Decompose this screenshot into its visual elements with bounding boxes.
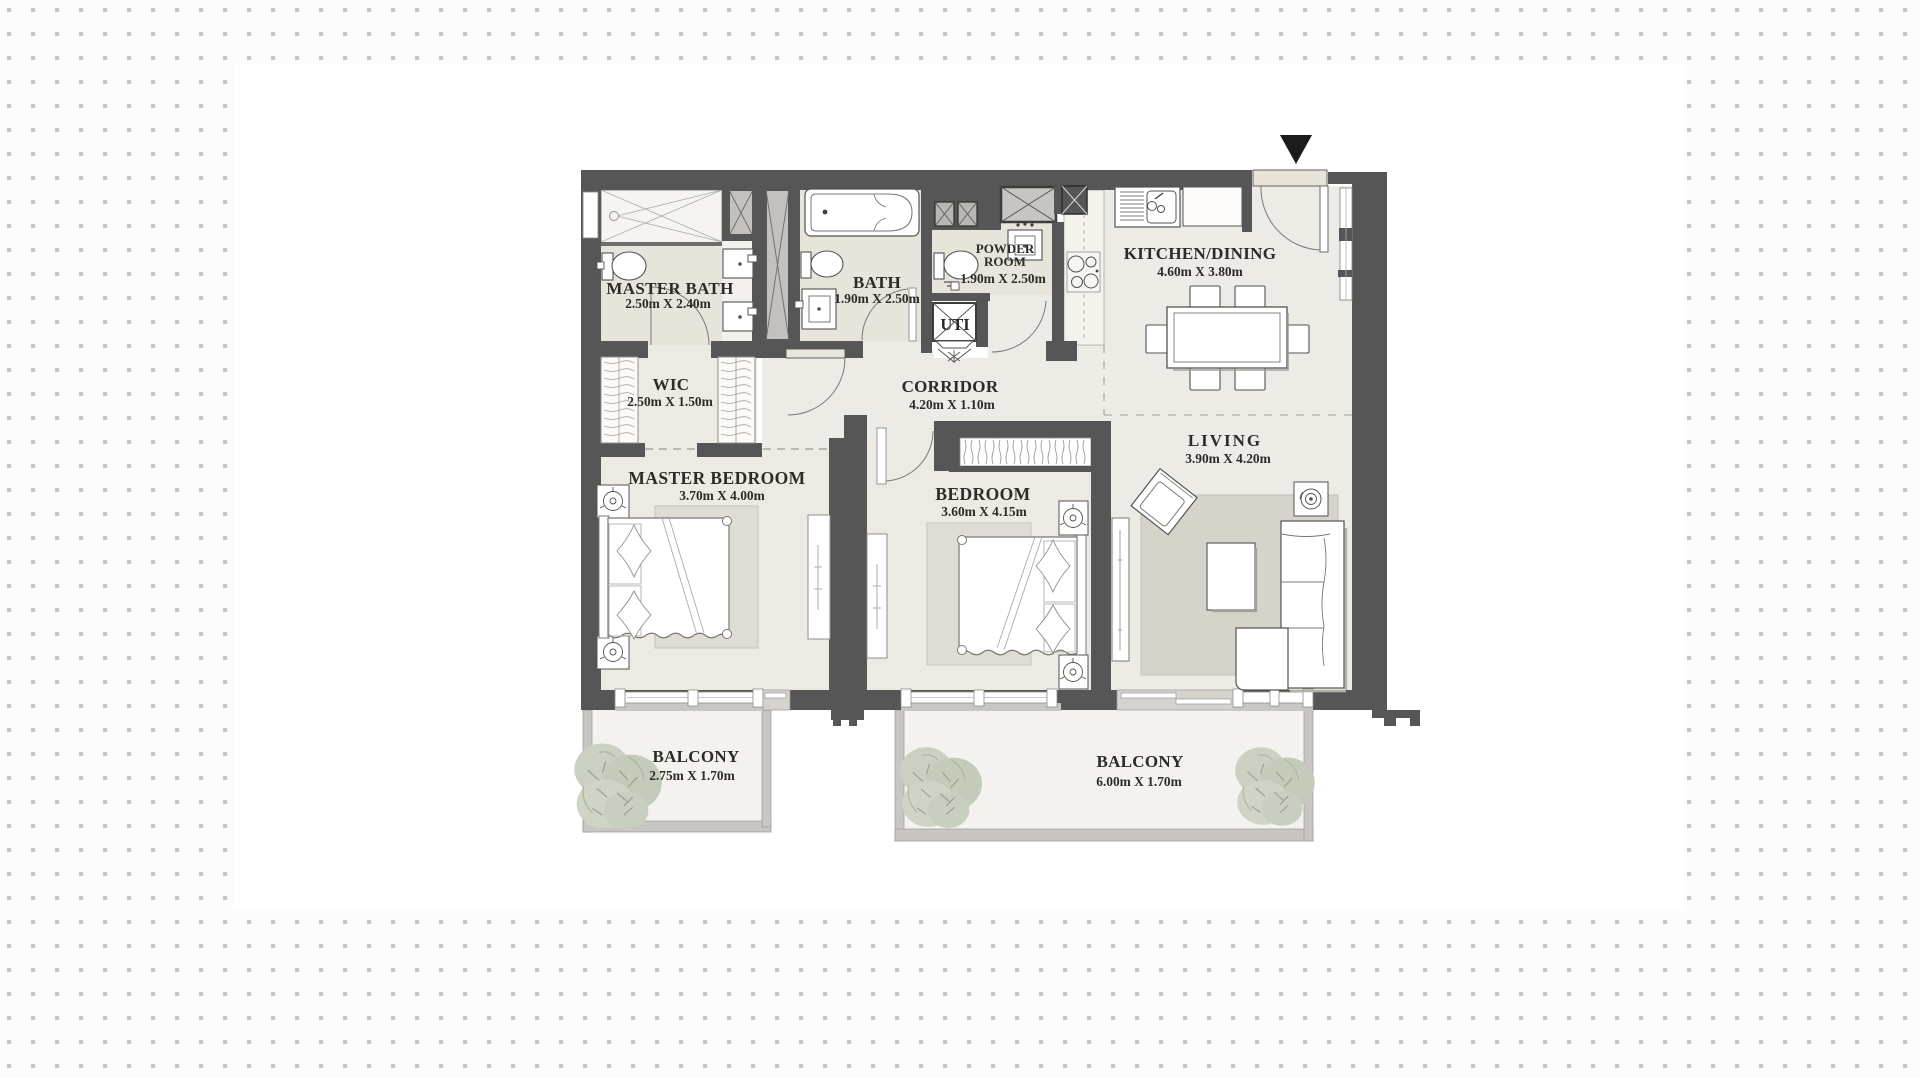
- svg-text:BALCONY: BALCONY: [652, 747, 739, 766]
- svg-text:CORRIDOR: CORRIDOR: [902, 377, 999, 396]
- svg-text:LIVING: LIVING: [1188, 431, 1262, 450]
- svg-text:2.75m X 1.70m: 2.75m X 1.70m: [649, 768, 735, 783]
- svg-text:UTI: UTI: [940, 315, 969, 334]
- svg-text:WIC: WIC: [653, 375, 690, 394]
- svg-text:1.90m X 2.50m: 1.90m X 2.50m: [834, 291, 920, 306]
- svg-text:MASTER BEDROOM: MASTER BEDROOM: [628, 468, 805, 488]
- svg-text:BEDROOM: BEDROOM: [935, 484, 1030, 504]
- svg-text:KITCHEN/DINING: KITCHEN/DINING: [1124, 244, 1277, 263]
- svg-text:4.60m X 3.80m: 4.60m X 3.80m: [1157, 264, 1243, 279]
- svg-text:6.00m X 1.70m: 6.00m X 1.70m: [1096, 774, 1182, 789]
- svg-text:ROOM: ROOM: [984, 254, 1026, 269]
- svg-text:3.60m X 4.15m: 3.60m X 4.15m: [941, 504, 1027, 519]
- svg-text:3.70m X 4.00m: 3.70m X 4.00m: [679, 488, 765, 503]
- svg-text:3.90m X 4.20m: 3.90m X 4.20m: [1185, 451, 1271, 466]
- svg-text:BATH: BATH: [853, 273, 901, 292]
- svg-text:2.50m X 1.50m: 2.50m X 1.50m: [627, 394, 713, 409]
- svg-text:BALCONY: BALCONY: [1096, 752, 1183, 771]
- svg-text:2.50m X 2.40m: 2.50m X 2.40m: [625, 296, 711, 311]
- svg-text:4.20m X 1.10m: 4.20m X 1.10m: [909, 397, 995, 412]
- svg-text:1.90m X 2.50m: 1.90m X 2.50m: [960, 271, 1046, 286]
